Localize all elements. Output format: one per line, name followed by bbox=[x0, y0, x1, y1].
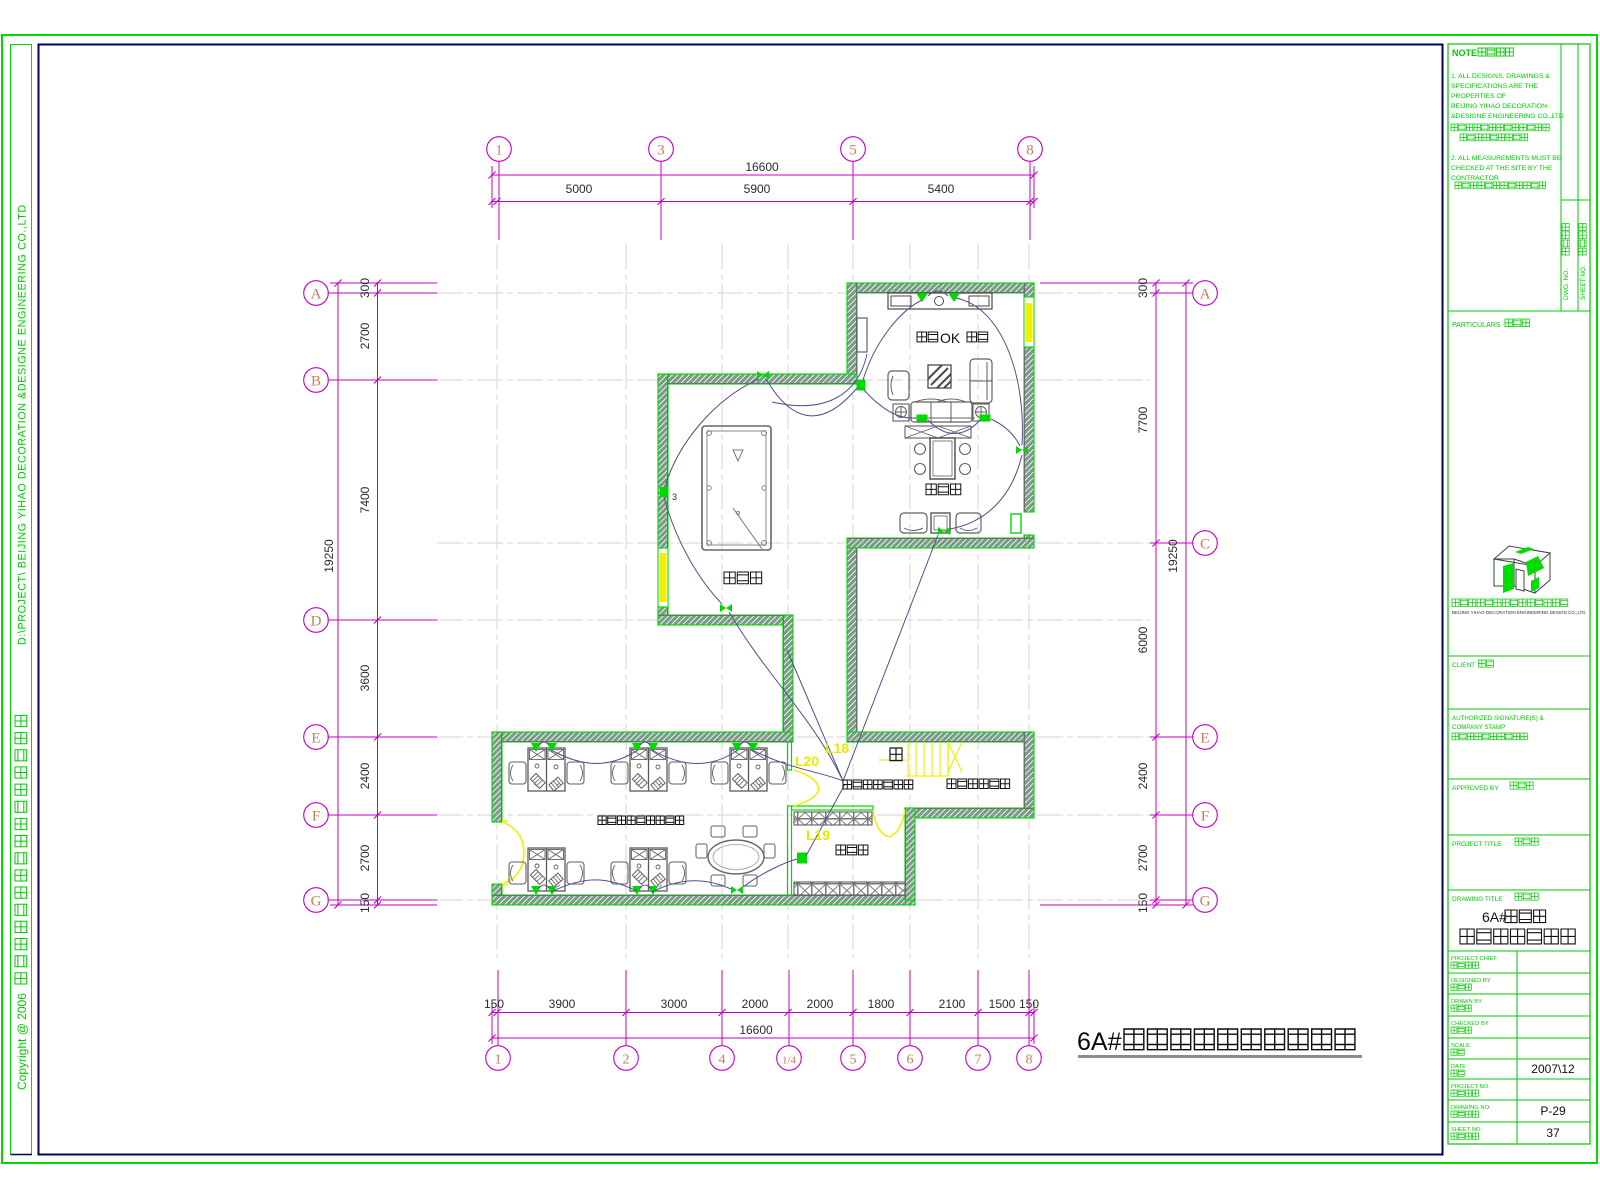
svg-text:L20: L20 bbox=[795, 753, 819, 769]
svg-text:2000: 2000 bbox=[742, 997, 769, 1011]
svg-text:SHEET NO.: SHEET NO. bbox=[1580, 265, 1587, 300]
svg-text:B: B bbox=[311, 374, 321, 390]
svg-text:150: 150 bbox=[1019, 997, 1039, 1011]
svg-text:L19: L19 bbox=[806, 827, 830, 843]
svg-text:5000: 5000 bbox=[566, 182, 593, 196]
svg-text:3: 3 bbox=[672, 492, 677, 502]
svg-text:1: 1 bbox=[495, 1053, 502, 1068]
svg-text:NOTE: NOTE bbox=[1452, 48, 1477, 58]
svg-text:300: 300 bbox=[1136, 278, 1150, 298]
svg-text:3: 3 bbox=[657, 143, 665, 159]
svg-text:A: A bbox=[1200, 287, 1211, 303]
svg-text:PROJECT NO.: PROJECT NO. bbox=[1451, 1084, 1490, 1090]
svg-text:PROPERTIES OF: PROPERTIES OF bbox=[1451, 93, 1506, 100]
svg-text:PROJECT TITLE: PROJECT TITLE bbox=[1452, 841, 1502, 848]
svg-text:DRAWING NO.: DRAWING NO. bbox=[1451, 1105, 1491, 1111]
svg-text:1800: 1800 bbox=[868, 997, 895, 1011]
svg-text:7700: 7700 bbox=[1136, 406, 1150, 433]
svg-text:BEIJING YIHAO DECORATION: BEIJING YIHAO DECORATION bbox=[1451, 103, 1547, 110]
svg-text:5: 5 bbox=[849, 143, 857, 159]
svg-text:1/4: 1/4 bbox=[782, 1055, 797, 1067]
svg-text:2700: 2700 bbox=[1136, 844, 1150, 871]
svg-text:3000: 3000 bbox=[661, 997, 688, 1011]
svg-text:6: 6 bbox=[907, 1053, 914, 1068]
svg-text:300: 300 bbox=[358, 278, 372, 298]
svg-text:2700: 2700 bbox=[358, 844, 372, 871]
svg-text:CHECKED BY: CHECKED BY bbox=[1451, 1021, 1489, 1027]
svg-text:16600: 16600 bbox=[745, 160, 779, 174]
svg-text:G: G bbox=[311, 894, 322, 910]
svg-text:G: G bbox=[1200, 894, 1211, 910]
svg-text:5900: 5900 bbox=[744, 182, 771, 196]
svg-text:2700: 2700 bbox=[358, 322, 372, 349]
svg-text:150: 150 bbox=[358, 893, 372, 913]
svg-text:SCALE: SCALE bbox=[1451, 1043, 1470, 1049]
svg-text:DWG. NO.: DWG. NO. bbox=[1563, 269, 1570, 300]
svg-text:AUTHORIZED SIGNATURE(S) &: AUTHORIZED SIGNATURE(S) & bbox=[1452, 715, 1545, 722]
svg-text:7400: 7400 bbox=[358, 486, 372, 513]
svg-text:APPROVED BY: APPROVED BY bbox=[1452, 785, 1499, 792]
svg-text:PARTICULARS: PARTICULARS bbox=[1452, 322, 1501, 329]
svg-text:4: 4 bbox=[719, 1053, 726, 1068]
svg-text:8: 8 bbox=[1026, 143, 1034, 159]
svg-text:COMPANY STAMP: COMPANY STAMP bbox=[1452, 724, 1505, 731]
svg-text:F: F bbox=[1201, 809, 1209, 825]
svg-text:3900: 3900 bbox=[549, 997, 576, 1011]
svg-text:6A#: 6A# bbox=[1077, 1028, 1122, 1056]
svg-text:5: 5 bbox=[850, 1053, 857, 1068]
svg-text:6000: 6000 bbox=[1136, 626, 1150, 653]
svg-text:150: 150 bbox=[1136, 893, 1150, 913]
svg-text:P-29: P-29 bbox=[1540, 1104, 1566, 1118]
svg-text:6A#: 6A# bbox=[1482, 909, 1507, 925]
svg-text:1. ALL DESIGNS, DRAWINGS &: 1. ALL DESIGNS, DRAWINGS & bbox=[1451, 73, 1550, 80]
svg-text:L18: L18 bbox=[825, 740, 849, 756]
svg-text:DATE: DATE bbox=[1451, 1064, 1466, 1070]
svg-text:8: 8 bbox=[1026, 1053, 1033, 1068]
svg-text:2007\12: 2007\12 bbox=[1531, 1062, 1575, 1076]
svg-text:E: E bbox=[1200, 731, 1209, 747]
svg-text:DRAWN BY: DRAWN BY bbox=[1451, 999, 1482, 1005]
svg-text:CHECKED AT THE SITE BY THE: CHECKED AT THE SITE BY THE bbox=[1451, 165, 1553, 172]
svg-text:5400: 5400 bbox=[928, 182, 955, 196]
svg-text:Copyright @ 2006: Copyright @ 2006 bbox=[15, 993, 29, 1090]
svg-text:19250: 19250 bbox=[322, 539, 336, 573]
svg-text:SHEET NO.: SHEET NO. bbox=[1451, 1127, 1483, 1133]
svg-text:3600: 3600 bbox=[358, 664, 372, 691]
svg-text:SPECIFICATIONS ARE THE: SPECIFICATIONS ARE THE bbox=[1451, 83, 1538, 90]
svg-text:CONTRACTOR: CONTRACTOR bbox=[1451, 175, 1499, 182]
svg-text:1500: 1500 bbox=[989, 997, 1016, 1011]
svg-text:PROJECT CHIEF: PROJECT CHIEF bbox=[1451, 956, 1497, 962]
svg-text:19250: 19250 bbox=[1166, 539, 1180, 573]
svg-text:&DESIGNE ENGINEERING CO.,LTD: &DESIGNE ENGINEERING CO.,LTD bbox=[1451, 113, 1564, 120]
svg-text:DRAWING TITLE: DRAWING TITLE bbox=[1452, 896, 1503, 903]
svg-text:A: A bbox=[311, 287, 322, 303]
svg-text:D:\PROJECT\ BEIJING YIHAO DEC: D:\PROJECT\ BEIJING YIHAO DECORATION &DE… bbox=[17, 204, 29, 645]
svg-text:BEIJING YIHAO DECORATION ENGIN: BEIJING YIHAO DECORATION ENGINEERING DES… bbox=[1452, 610, 1586, 615]
svg-text:7: 7 bbox=[975, 1053, 982, 1068]
svg-text:2: 2 bbox=[623, 1053, 630, 1068]
svg-text:C: C bbox=[1200, 537, 1210, 553]
svg-text:16600: 16600 bbox=[739, 1023, 773, 1037]
svg-text:E: E bbox=[311, 731, 320, 747]
svg-text:2000: 2000 bbox=[807, 997, 834, 1011]
svg-text:2400: 2400 bbox=[1136, 762, 1150, 789]
svg-text:OK: OK bbox=[940, 330, 961, 346]
svg-text:150: 150 bbox=[484, 997, 504, 1011]
svg-text:DESIGNED BY: DESIGNED BY bbox=[1451, 978, 1491, 984]
svg-text:2100: 2100 bbox=[939, 997, 966, 1011]
svg-text:37: 37 bbox=[1546, 1126, 1560, 1140]
svg-text:D: D bbox=[311, 614, 322, 630]
svg-text:F: F bbox=[312, 809, 320, 825]
svg-text:2. ALL MEASUREMENTS MUST BE: 2. ALL MEASUREMENTS MUST BE bbox=[1451, 155, 1562, 162]
svg-text:1: 1 bbox=[495, 143, 503, 159]
svg-text:2400: 2400 bbox=[358, 762, 372, 789]
svg-text:CLIENT: CLIENT bbox=[1452, 662, 1475, 669]
